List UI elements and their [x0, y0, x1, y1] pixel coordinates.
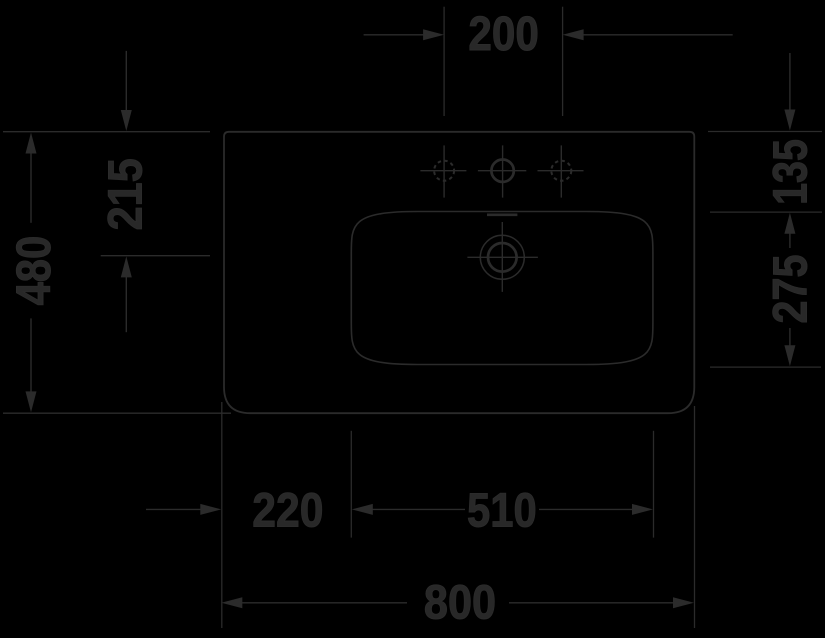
- svg-text:800: 800: [424, 575, 496, 629]
- svg-text:215: 215: [98, 158, 152, 230]
- svg-text:480: 480: [7, 236, 61, 306]
- svg-text:220: 220: [252, 484, 323, 538]
- svg-text:135: 135: [763, 139, 817, 205]
- svg-text:275: 275: [763, 255, 817, 324]
- svg-text:200: 200: [468, 7, 539, 61]
- svg-text:510: 510: [467, 484, 537, 538]
